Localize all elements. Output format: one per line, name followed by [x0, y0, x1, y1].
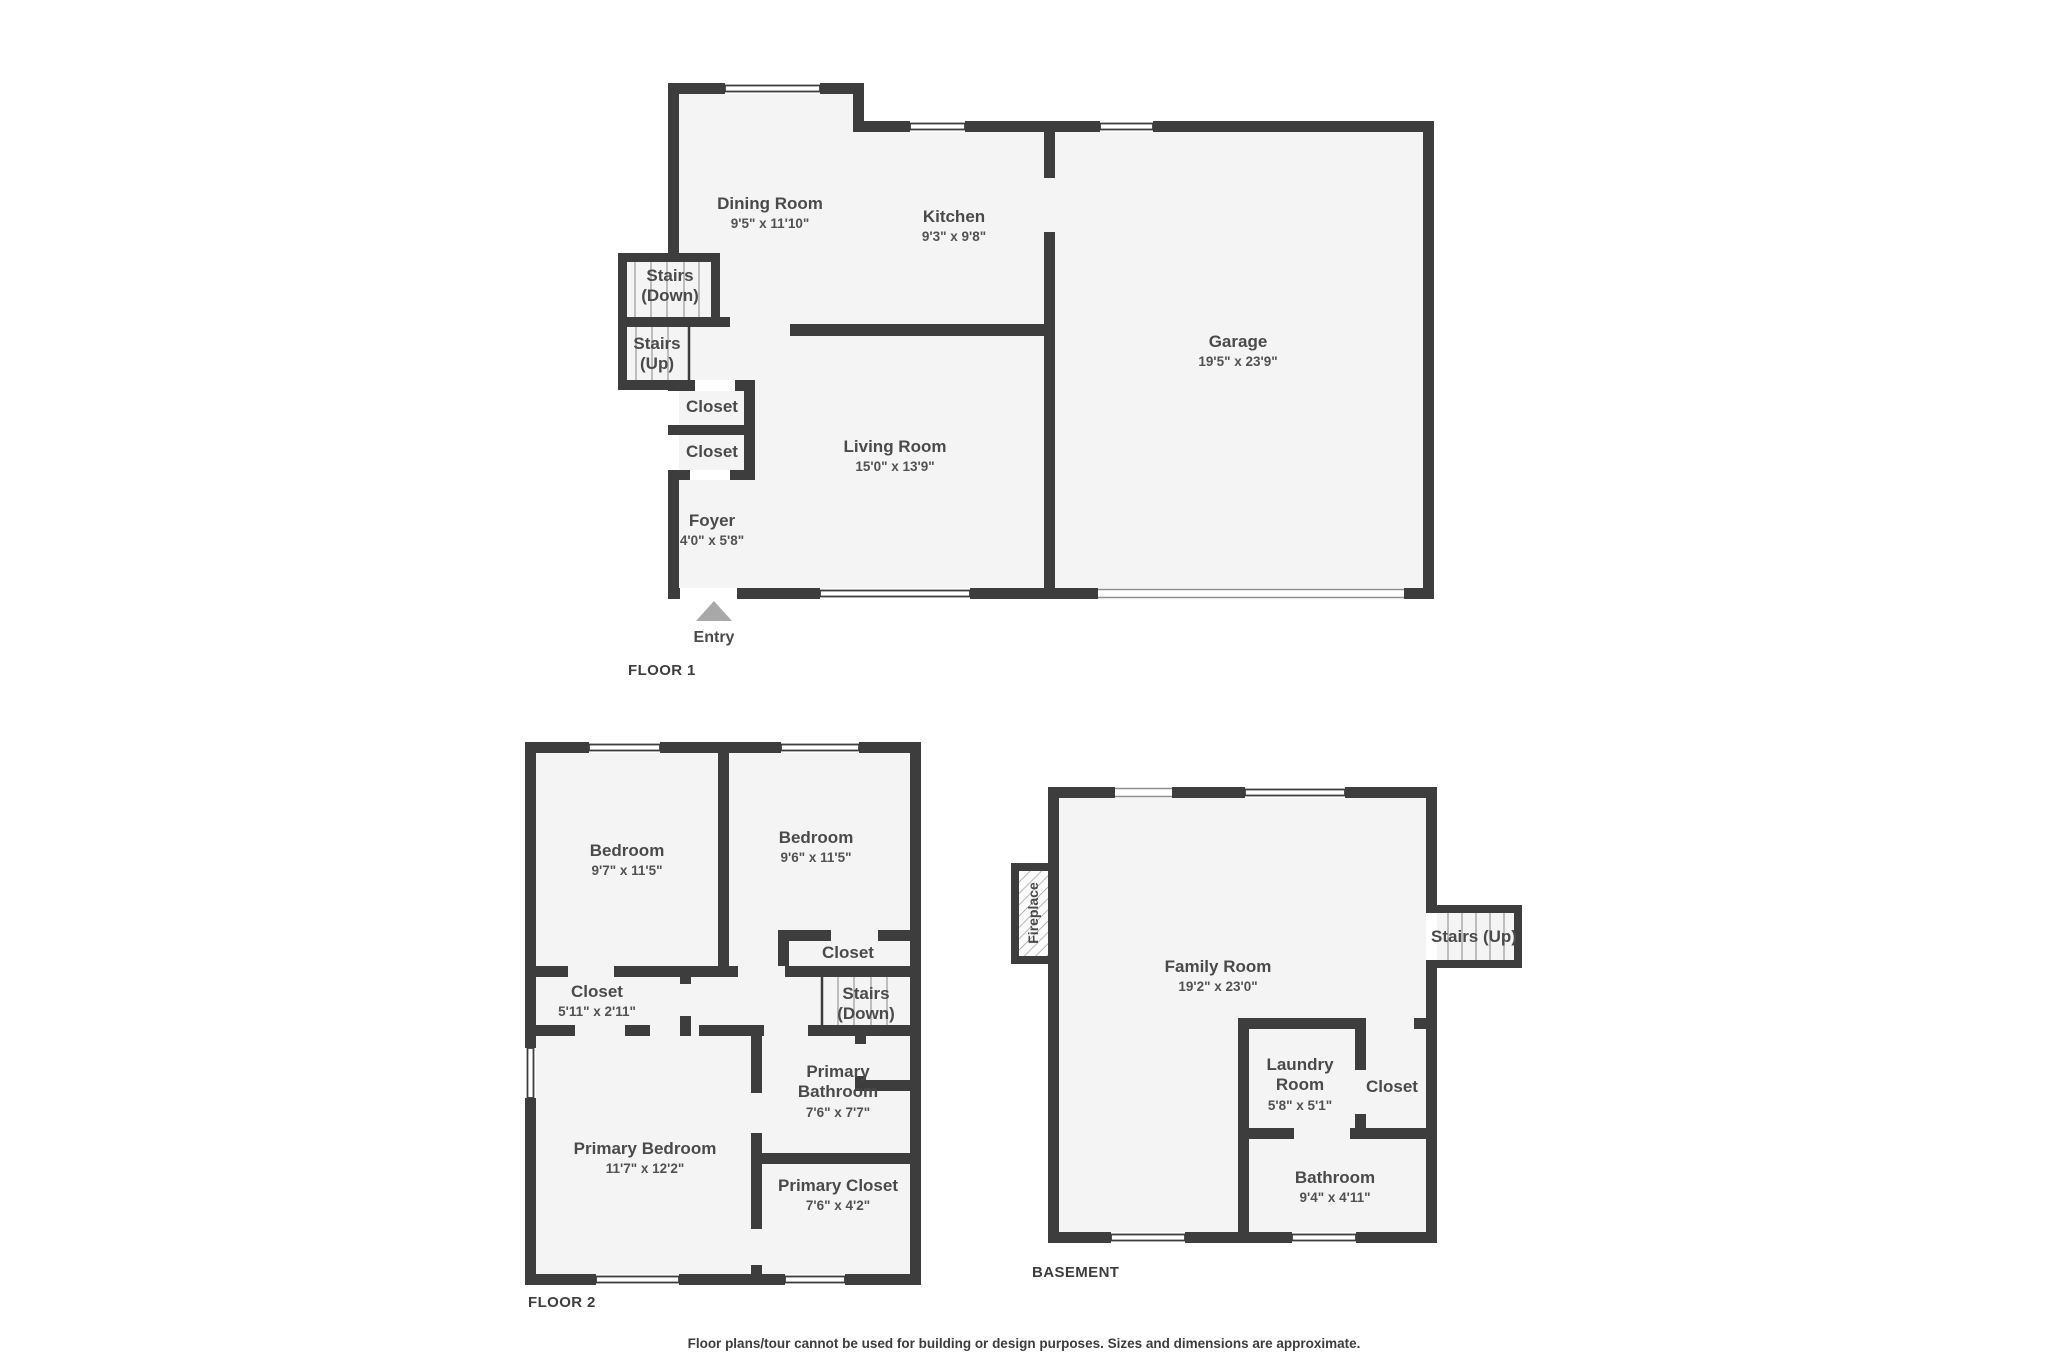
room-label-closet-basement: Closet: [1366, 1077, 1418, 1097]
room-name: Closet: [686, 442, 738, 462]
room-dims: 9'6" x 11'5": [779, 849, 854, 867]
room-dims: 15'0" x 13'9": [844, 458, 947, 476]
room-label-primary-closet: Primary Closet 7'6" x 4'2": [778, 1176, 898, 1215]
room-label-family: Family Room 19'2" x 23'0": [1165, 957, 1272, 996]
room-label-stairs-down-f2: Stairs (Down): [818, 984, 914, 1025]
room-name: Dining Room: [717, 194, 823, 214]
room-label-dining: Dining Room 9'5" x 11'10": [717, 194, 823, 233]
floorplan-drawing: [0, 0, 2048, 1365]
room-label-closet-a-f1: Closet: [686, 397, 738, 417]
room-label-garage: Garage 19'5" x 23'9": [1198, 332, 1277, 371]
room-label-laundry: Laundry Room 5'8" x 5'1": [1250, 1055, 1350, 1114]
entry-label: Entry: [694, 629, 735, 647]
basement-plan: [1011, 787, 1522, 1243]
room-label-bedroom-b: Bedroom 9'6" x 11'5": [779, 828, 854, 867]
floor1-title: FLOOR 1: [628, 662, 696, 679]
room-dims: 11'7" x 12'2": [574, 1160, 717, 1178]
room-dims: 7'6" x 4'2": [778, 1197, 898, 1215]
room-name: Stairs (Down): [622, 266, 718, 307]
room-name: Living Room: [844, 437, 947, 457]
basement-title: BASEMENT: [1032, 1264, 1119, 1281]
room-name: Closet: [1366, 1077, 1418, 1097]
room-name: Stairs (Up): [1431, 927, 1517, 947]
room-label-primary-bathroom: Primary Bathroom 7'6" x 7'7": [773, 1062, 903, 1121]
room-name: Bedroom: [779, 828, 854, 848]
room-label-living: Living Room 15'0" x 13'9": [844, 437, 947, 476]
floor2-title: FLOOR 2: [528, 1294, 596, 1311]
room-dims: 4'0" x 5'8": [680, 532, 744, 550]
room-label-closet-hall: Closet 5'11" x 2'11": [558, 982, 636, 1021]
room-dims: 19'5" x 23'9": [1198, 353, 1277, 371]
entry-arrow-icon: [696, 601, 732, 621]
room-name: Bathroom: [1295, 1168, 1375, 1188]
room-name: Garage: [1198, 332, 1277, 352]
room-name: Primary Bedroom: [574, 1139, 717, 1159]
room-dims: 9'3" x 9'8": [922, 228, 986, 246]
room-name: Closet: [558, 982, 636, 1002]
room-label-stairs-up-f1: Stairs (Up): [622, 334, 692, 375]
room-dims: 19'2" x 23'0": [1165, 978, 1272, 996]
room-name: Closet: [686, 397, 738, 417]
room-label-kitchen: Kitchen 9'3" x 9'8": [922, 207, 986, 246]
room-name: Family Room: [1165, 957, 1272, 977]
room-label-stairs-down-f1: Stairs (Down): [622, 266, 718, 307]
room-name: Primary Closet: [778, 1176, 898, 1196]
room-name: Kitchen: [922, 207, 986, 227]
room-name: Primary Bathroom: [773, 1062, 903, 1103]
room-name: Laundry Room: [1250, 1055, 1350, 1096]
room-name: Stairs (Down): [818, 984, 914, 1025]
room-dims: 9'7" x 11'5": [590, 862, 665, 880]
room-label-closet-tr: Closet: [822, 943, 874, 963]
room-name: Closet: [822, 943, 874, 963]
room-name: Stairs (Up): [622, 334, 692, 375]
floorplan-page: Dining Room 9'5" x 11'10" Kitchen 9'3" x…: [0, 0, 2048, 1365]
room-label-foyer: Foyer 4'0" x 5'8": [680, 511, 744, 550]
room-dims: 9'4" x 4'11": [1295, 1189, 1375, 1207]
garage-door: [1098, 588, 1404, 599]
room-dims: 5'11" x 2'11": [558, 1003, 636, 1021]
room-label-primary-bedroom: Primary Bedroom 11'7" x 12'2": [574, 1139, 717, 1178]
room-dims: 7'6" x 7'7": [773, 1104, 903, 1122]
room-label-closet-b-f1: Closet: [686, 442, 738, 462]
room-label-bedroom-a: Bedroom 9'7" x 11'5": [590, 841, 665, 880]
room-name: Foyer: [680, 511, 744, 531]
room-name: Bedroom: [590, 841, 665, 861]
room-dims: 5'8" x 5'1": [1250, 1097, 1350, 1115]
room-dims: 9'5" x 11'10": [717, 215, 823, 233]
disclaimer-text: Floor plans/tour cannot be used for buil…: [688, 1336, 1361, 1351]
fireplace-label: Fireplace: [1025, 882, 1041, 943]
room-label-stairs-up-basement: Stairs (Up): [1431, 927, 1517, 947]
room-label-bathroom: Bathroom 9'4" x 4'11": [1295, 1168, 1375, 1207]
